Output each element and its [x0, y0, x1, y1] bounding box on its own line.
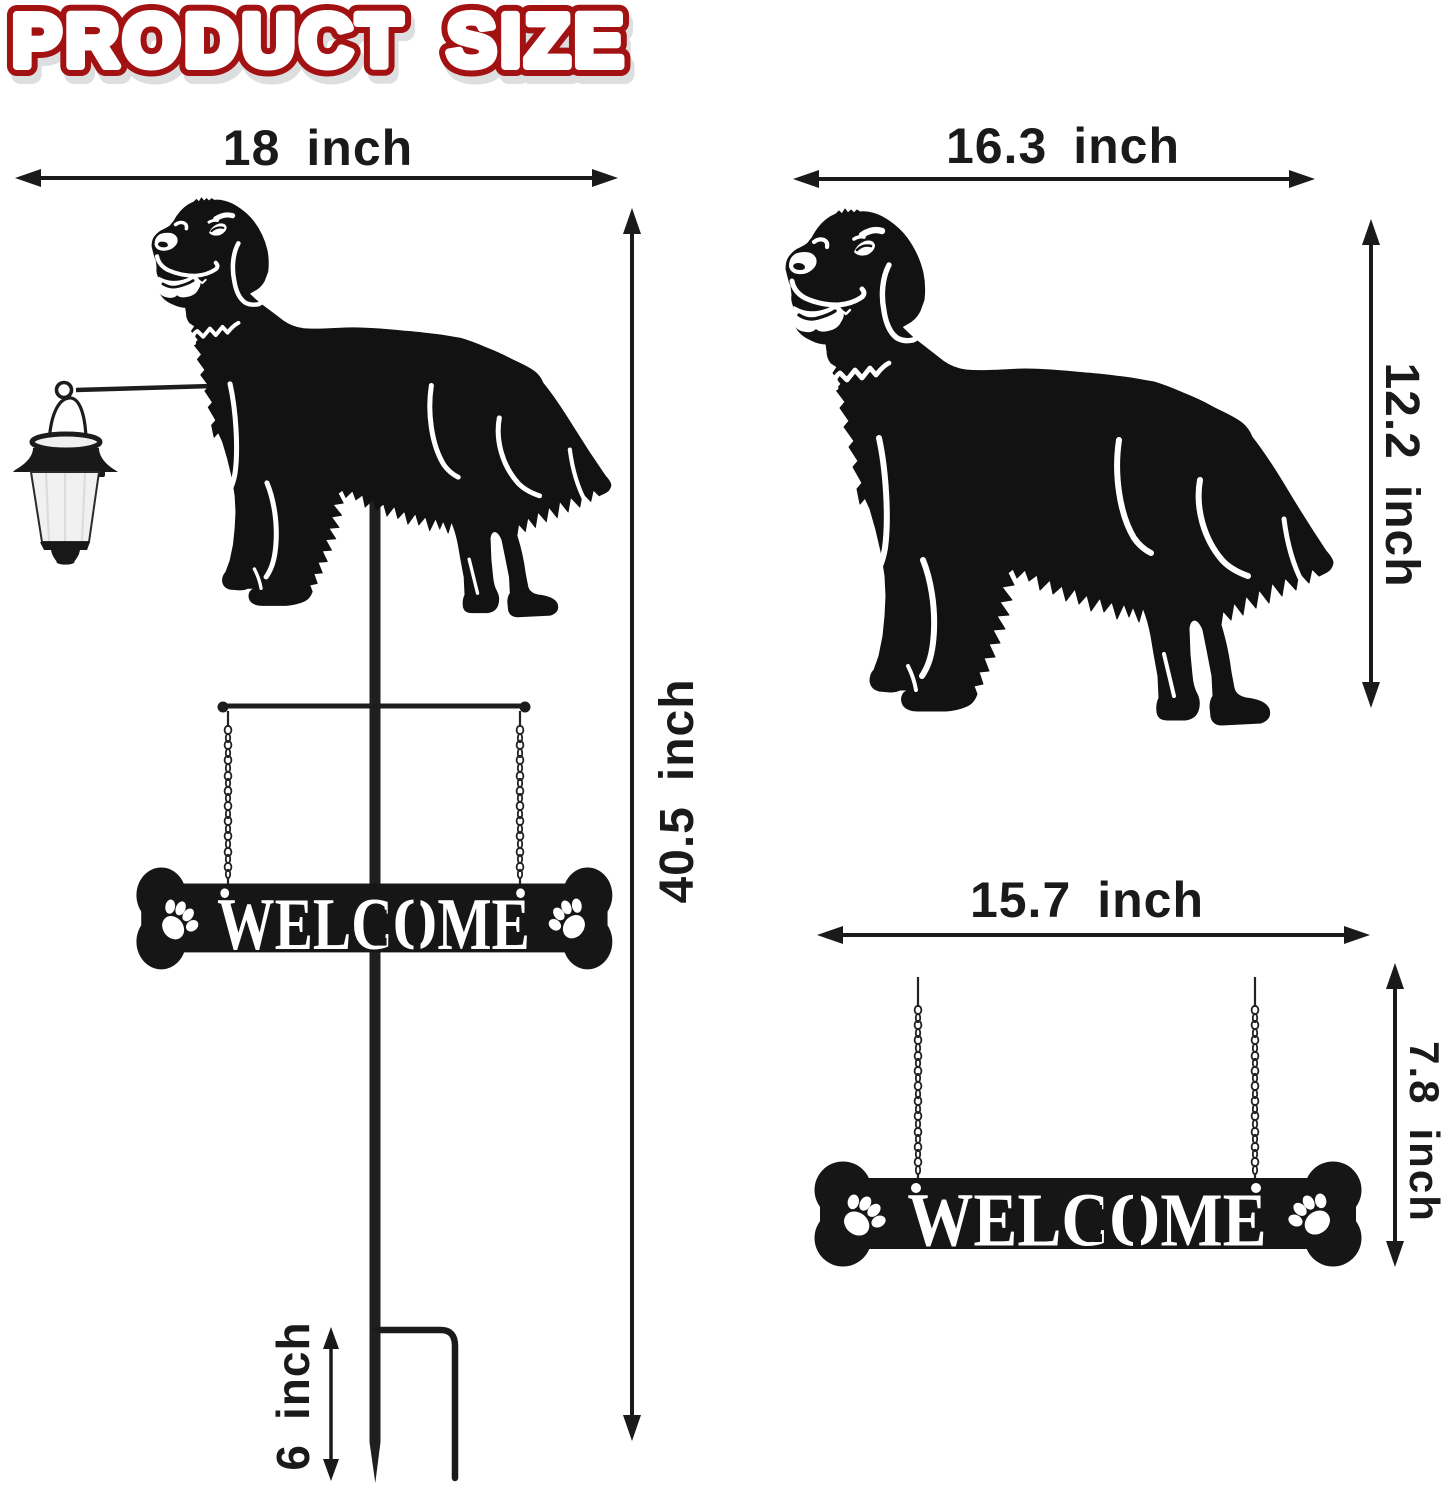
svg-text:40.5 inch: 40.5 inch: [651, 678, 704, 903]
svg-text:PRODUCT SIZE: PRODUCT SIZE: [12, 0, 627, 82]
svg-text:18 inch: 18 inch: [223, 120, 413, 176]
svg-text:12.2 inch: 12.2 inch: [1375, 362, 1428, 587]
svg-text:7.8 inch: 7.8 inch: [1401, 1041, 1445, 1223]
svg-text:16.3 inch: 16.3 inch: [946, 118, 1180, 174]
svg-text:15.7 inch: 15.7 inch: [970, 872, 1204, 928]
svg-text:6 inch: 6 inch: [267, 1321, 319, 1470]
